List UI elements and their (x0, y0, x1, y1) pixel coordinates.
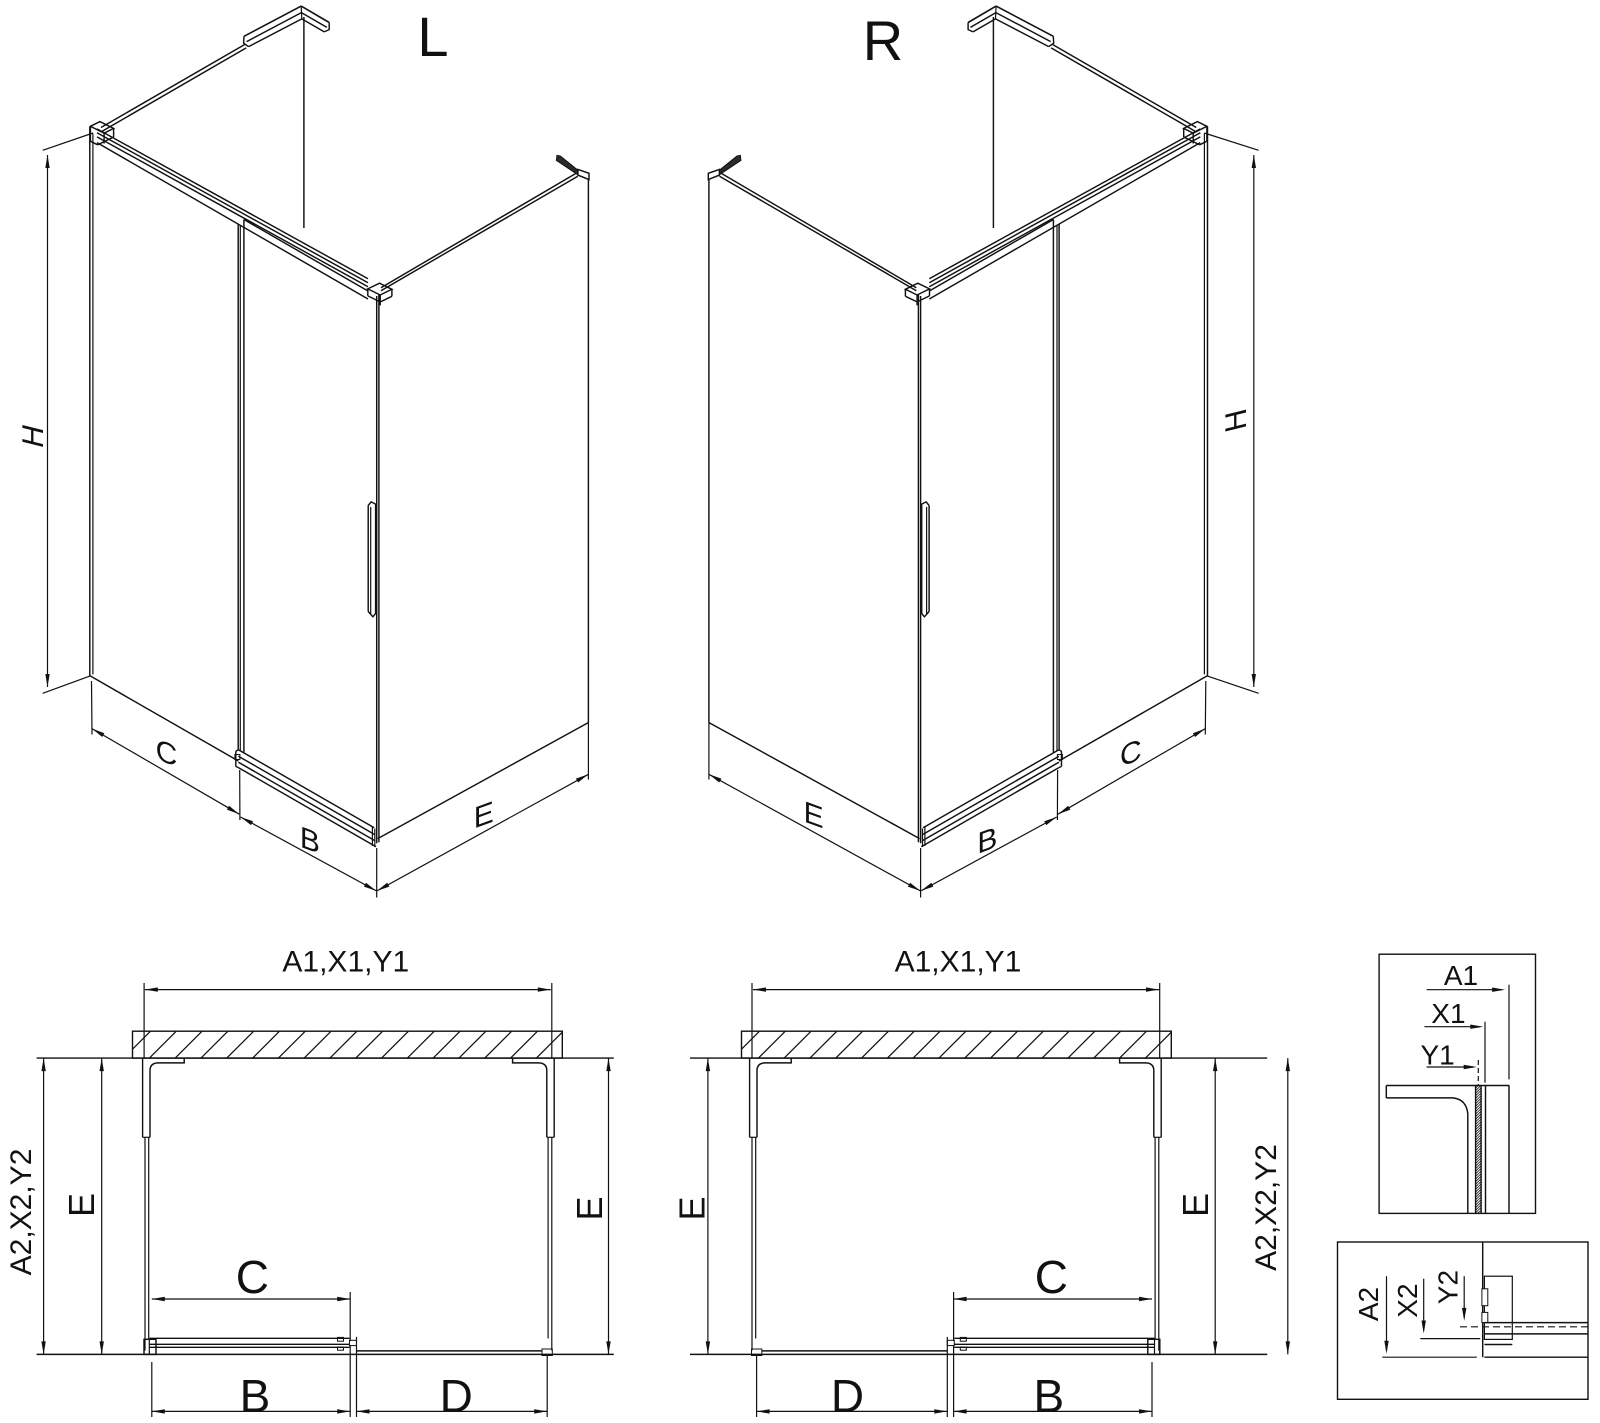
svg-text:D: D (831, 1370, 864, 1422)
svg-text:Y1: Y1 (1420, 1040, 1454, 1071)
svg-text:Y2: Y2 (1433, 1270, 1464, 1304)
svg-text:D: D (440, 1370, 473, 1422)
svg-text:R: R (863, 9, 903, 72)
svg-text:C: C (236, 1251, 269, 1303)
svg-text:X1: X1 (1431, 998, 1465, 1029)
svg-text:E: E (569, 1196, 610, 1220)
svg-text:A1,X1,Y1: A1,X1,Y1 (282, 946, 409, 979)
svg-text:E: E (61, 1193, 102, 1217)
svg-text:A1,X1,Y1: A1,X1,Y1 (895, 946, 1022, 979)
svg-text:A1: A1 (1444, 960, 1478, 991)
svg-text:A2,X2,Y2: A2,X2,Y2 (1250, 1144, 1283, 1271)
svg-text:E: E (672, 1196, 713, 1220)
svg-text:L: L (417, 5, 448, 68)
svg-text:A2: A2 (1353, 1287, 1384, 1321)
svg-text:A2,X2,Y2: A2,X2,Y2 (5, 1149, 38, 1276)
svg-text:X2: X2 (1392, 1283, 1423, 1317)
svg-text:B: B (240, 1370, 271, 1422)
svg-text:C: C (1035, 1251, 1068, 1303)
svg-text:B: B (1033, 1370, 1064, 1422)
svg-text:E: E (1175, 1193, 1216, 1217)
